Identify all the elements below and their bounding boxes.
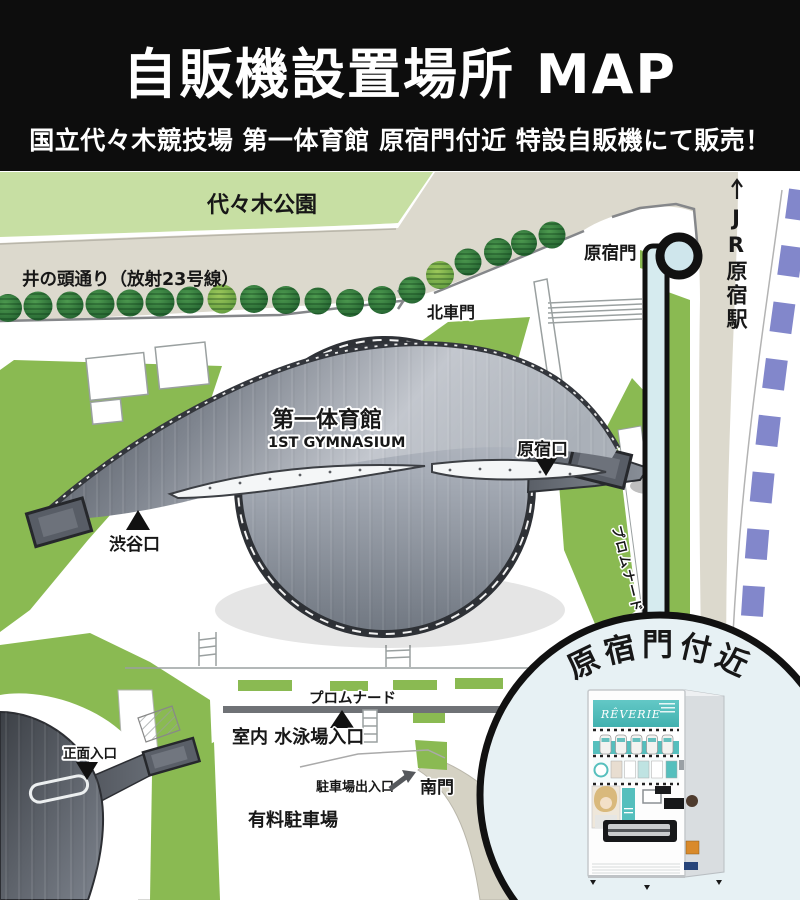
gym1-name-en: 1ST GYMNASIUM [268, 435, 405, 451]
gym1-name-ja: 第一体育館 [272, 407, 382, 433]
pool-entrance-stairs [363, 710, 377, 742]
parking-gate-label: 駐車場出入口 [316, 779, 394, 795]
machine-bottle-shelf [593, 732, 679, 754]
blue-sticker [684, 862, 698, 870]
main-entrance-label: 正面入口 [63, 746, 117, 762]
machine-teal-card [622, 788, 635, 821]
machine-header-smallprint [659, 703, 675, 713]
display-panel [655, 786, 671, 794]
south-gate-label: 南門 [420, 777, 454, 798]
jr-harajuku-station-label: JR原宿駅 [724, 206, 748, 332]
side-button [679, 760, 684, 770]
vending-machine: RÊVERIE [588, 690, 724, 890]
harajuku-exit-label: 原宿口 [517, 439, 568, 460]
north-vehicle-gate-label: 北車門 [427, 303, 475, 322]
vending-location-marker [660, 237, 698, 275]
promenade-label-bottom: プロムナード [309, 690, 396, 707]
machine-dispense-tray [603, 820, 677, 842]
map-canvas: 原宿門付近 RÊVERIE [0, 0, 800, 900]
coin-slot-panel [664, 798, 684, 809]
vending-machine-map-poster: 原宿門付近 RÊVERIE [0, 0, 800, 900]
paid-parking-label: 有料駐車場 [248, 809, 338, 831]
yoyogi-park-label: 代々木公園 [206, 193, 317, 218]
machine-card-shelf [593, 758, 679, 782]
poster-header: 自販機設置場所 MAP 国立代々木競技場 第一体育館 原宿門付近 特設自販機にて… [0, 0, 800, 171]
harajuku-gate-label: 原宿門 [584, 243, 637, 264]
machine-brand-label: RÊVERIE [600, 707, 661, 721]
coin-return-knob [686, 795, 698, 807]
inokashira-street-label: 井の頭通り（放射23号線） [22, 269, 239, 290]
poster-subtitle: 国立代々木競技場 第一体育館 原宿門付近 特設自販機にて販売！ [29, 126, 771, 155]
orange-sticker [686, 841, 699, 854]
shibuya-exit-label: 渋谷口 [109, 534, 160, 555]
poster-title: 自販機設置場所 MAP [123, 43, 677, 106]
pool-entrance-label: 室内 水泳場入口 [232, 726, 364, 748]
